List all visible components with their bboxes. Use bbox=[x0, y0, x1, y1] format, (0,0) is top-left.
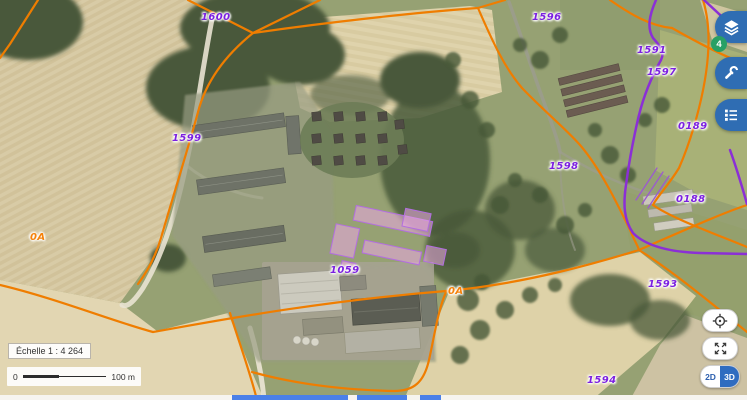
right-toolbar: 4 bbox=[715, 11, 747, 131]
section-label: 0A bbox=[30, 232, 46, 243]
expand-icon bbox=[713, 341, 728, 356]
bottom-panel-strip bbox=[0, 395, 747, 400]
parcel-label: 1059 bbox=[330, 265, 359, 276]
view-dimension-toggle: 2D 3D bbox=[700, 365, 740, 388]
map-controls: 2D 3D bbox=[700, 309, 740, 388]
parcel-label: 1597 bbox=[647, 67, 676, 78]
scale-bar-end: 100 m bbox=[111, 372, 135, 382]
layers-icon bbox=[723, 19, 740, 36]
toggle-3d[interactable]: 3D bbox=[720, 366, 739, 387]
wrench-icon bbox=[723, 65, 739, 81]
scale-bar: 0 100 m bbox=[7, 367, 141, 386]
parcel-label: 1596 bbox=[532, 12, 561, 23]
locate-button[interactable] bbox=[702, 309, 738, 332]
bottom-panel-segment bbox=[420, 395, 441, 400]
layers-count-badge: 4 bbox=[711, 36, 727, 52]
parcel-label: 1600 bbox=[201, 12, 230, 23]
scale-bar-line bbox=[23, 375, 107, 378]
aerial-imagery bbox=[0, 0, 747, 400]
parcel-label: 0189 bbox=[678, 121, 707, 132]
legend-button[interactable] bbox=[715, 99, 747, 131]
layers-button[interactable]: 4 bbox=[715, 11, 747, 43]
fullscreen-button[interactable] bbox=[702, 337, 738, 360]
parcel-label: 1599 bbox=[172, 133, 201, 144]
parcel-label: 1591 bbox=[637, 45, 666, 56]
scale-bar-start: 0 bbox=[13, 372, 18, 382]
bottom-panel-segment bbox=[357, 395, 407, 400]
crosshair-icon bbox=[712, 313, 728, 329]
section-label: 0A bbox=[448, 286, 464, 297]
parcel-label: 1593 bbox=[648, 279, 677, 290]
legend-list-icon bbox=[723, 107, 739, 123]
parcel-label: 1598 bbox=[549, 161, 578, 172]
parcel-label: 1594 bbox=[587, 375, 616, 386]
map-viewport: 1600 1596 1591 1597 0189 1599 1598 0188 … bbox=[0, 0, 747, 400]
map-canvas[interactable] bbox=[0, 0, 747, 400]
parcel-label: 0188 bbox=[676, 194, 705, 205]
toggle-2d[interactable]: 2D bbox=[701, 366, 720, 387]
bottom-panel-segment bbox=[232, 395, 348, 400]
scale-ratio-label: Échelle 1 : 4 264 bbox=[8, 343, 91, 359]
tools-button[interactable] bbox=[715, 57, 747, 89]
